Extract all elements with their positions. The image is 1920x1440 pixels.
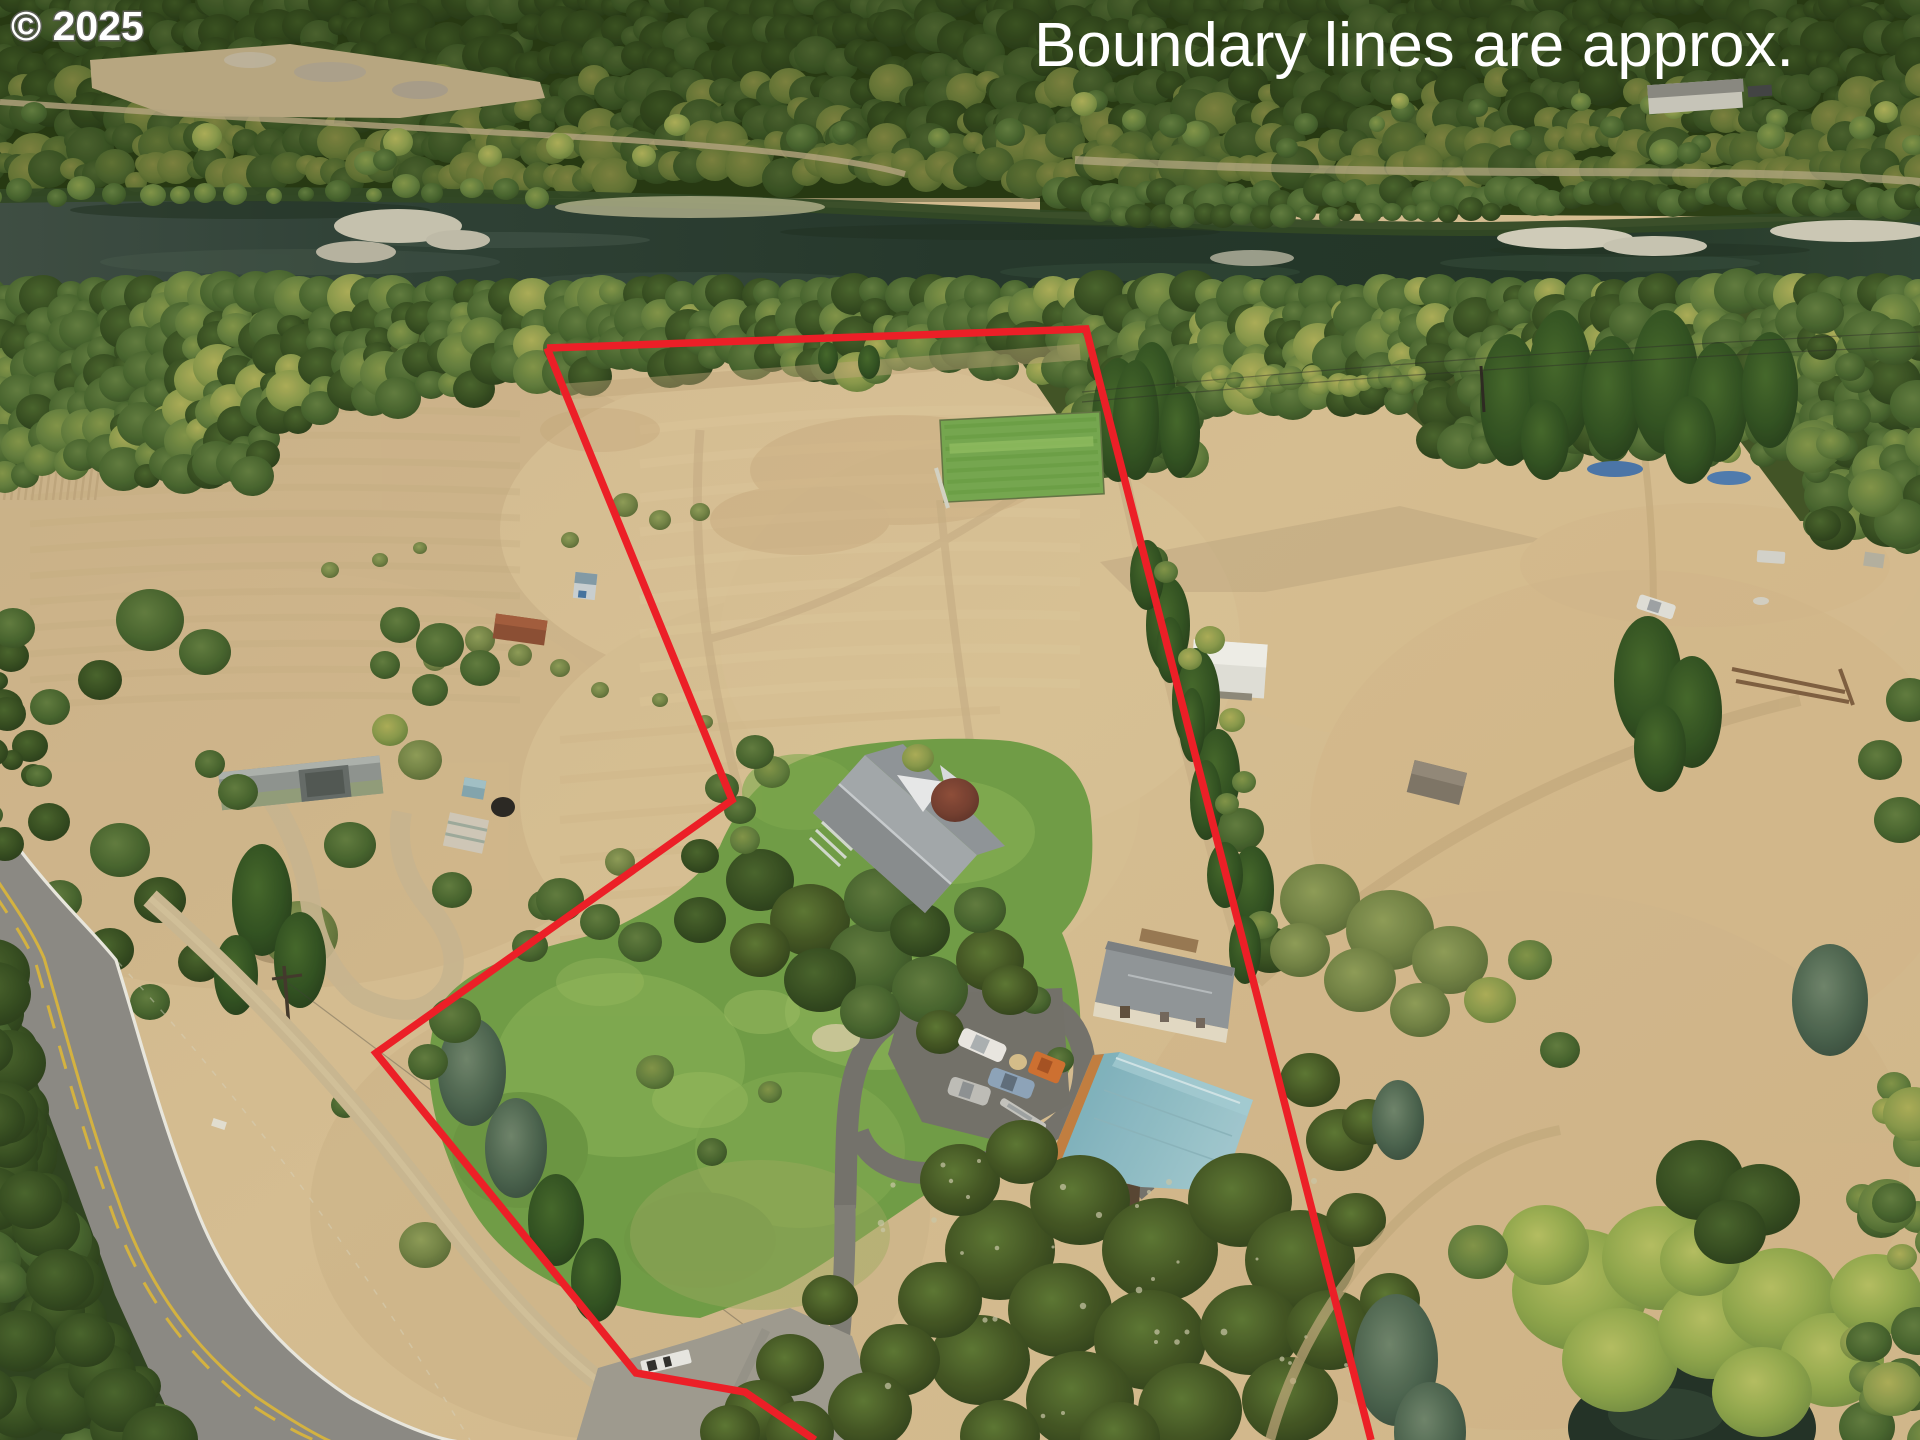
- svg-text:Boundary lines are approx.: Boundary lines are approx.: [1034, 11, 1794, 80]
- svg-text:© 2025: © 2025: [11, 3, 144, 49]
